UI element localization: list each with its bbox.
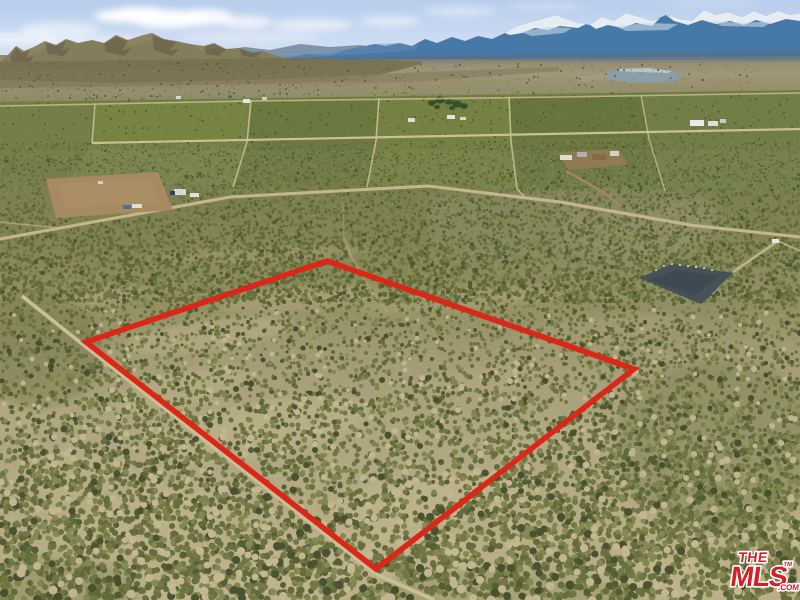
svg-text:TM: TM [783, 562, 792, 568]
svg-text:.COM: .COM [778, 583, 800, 592]
